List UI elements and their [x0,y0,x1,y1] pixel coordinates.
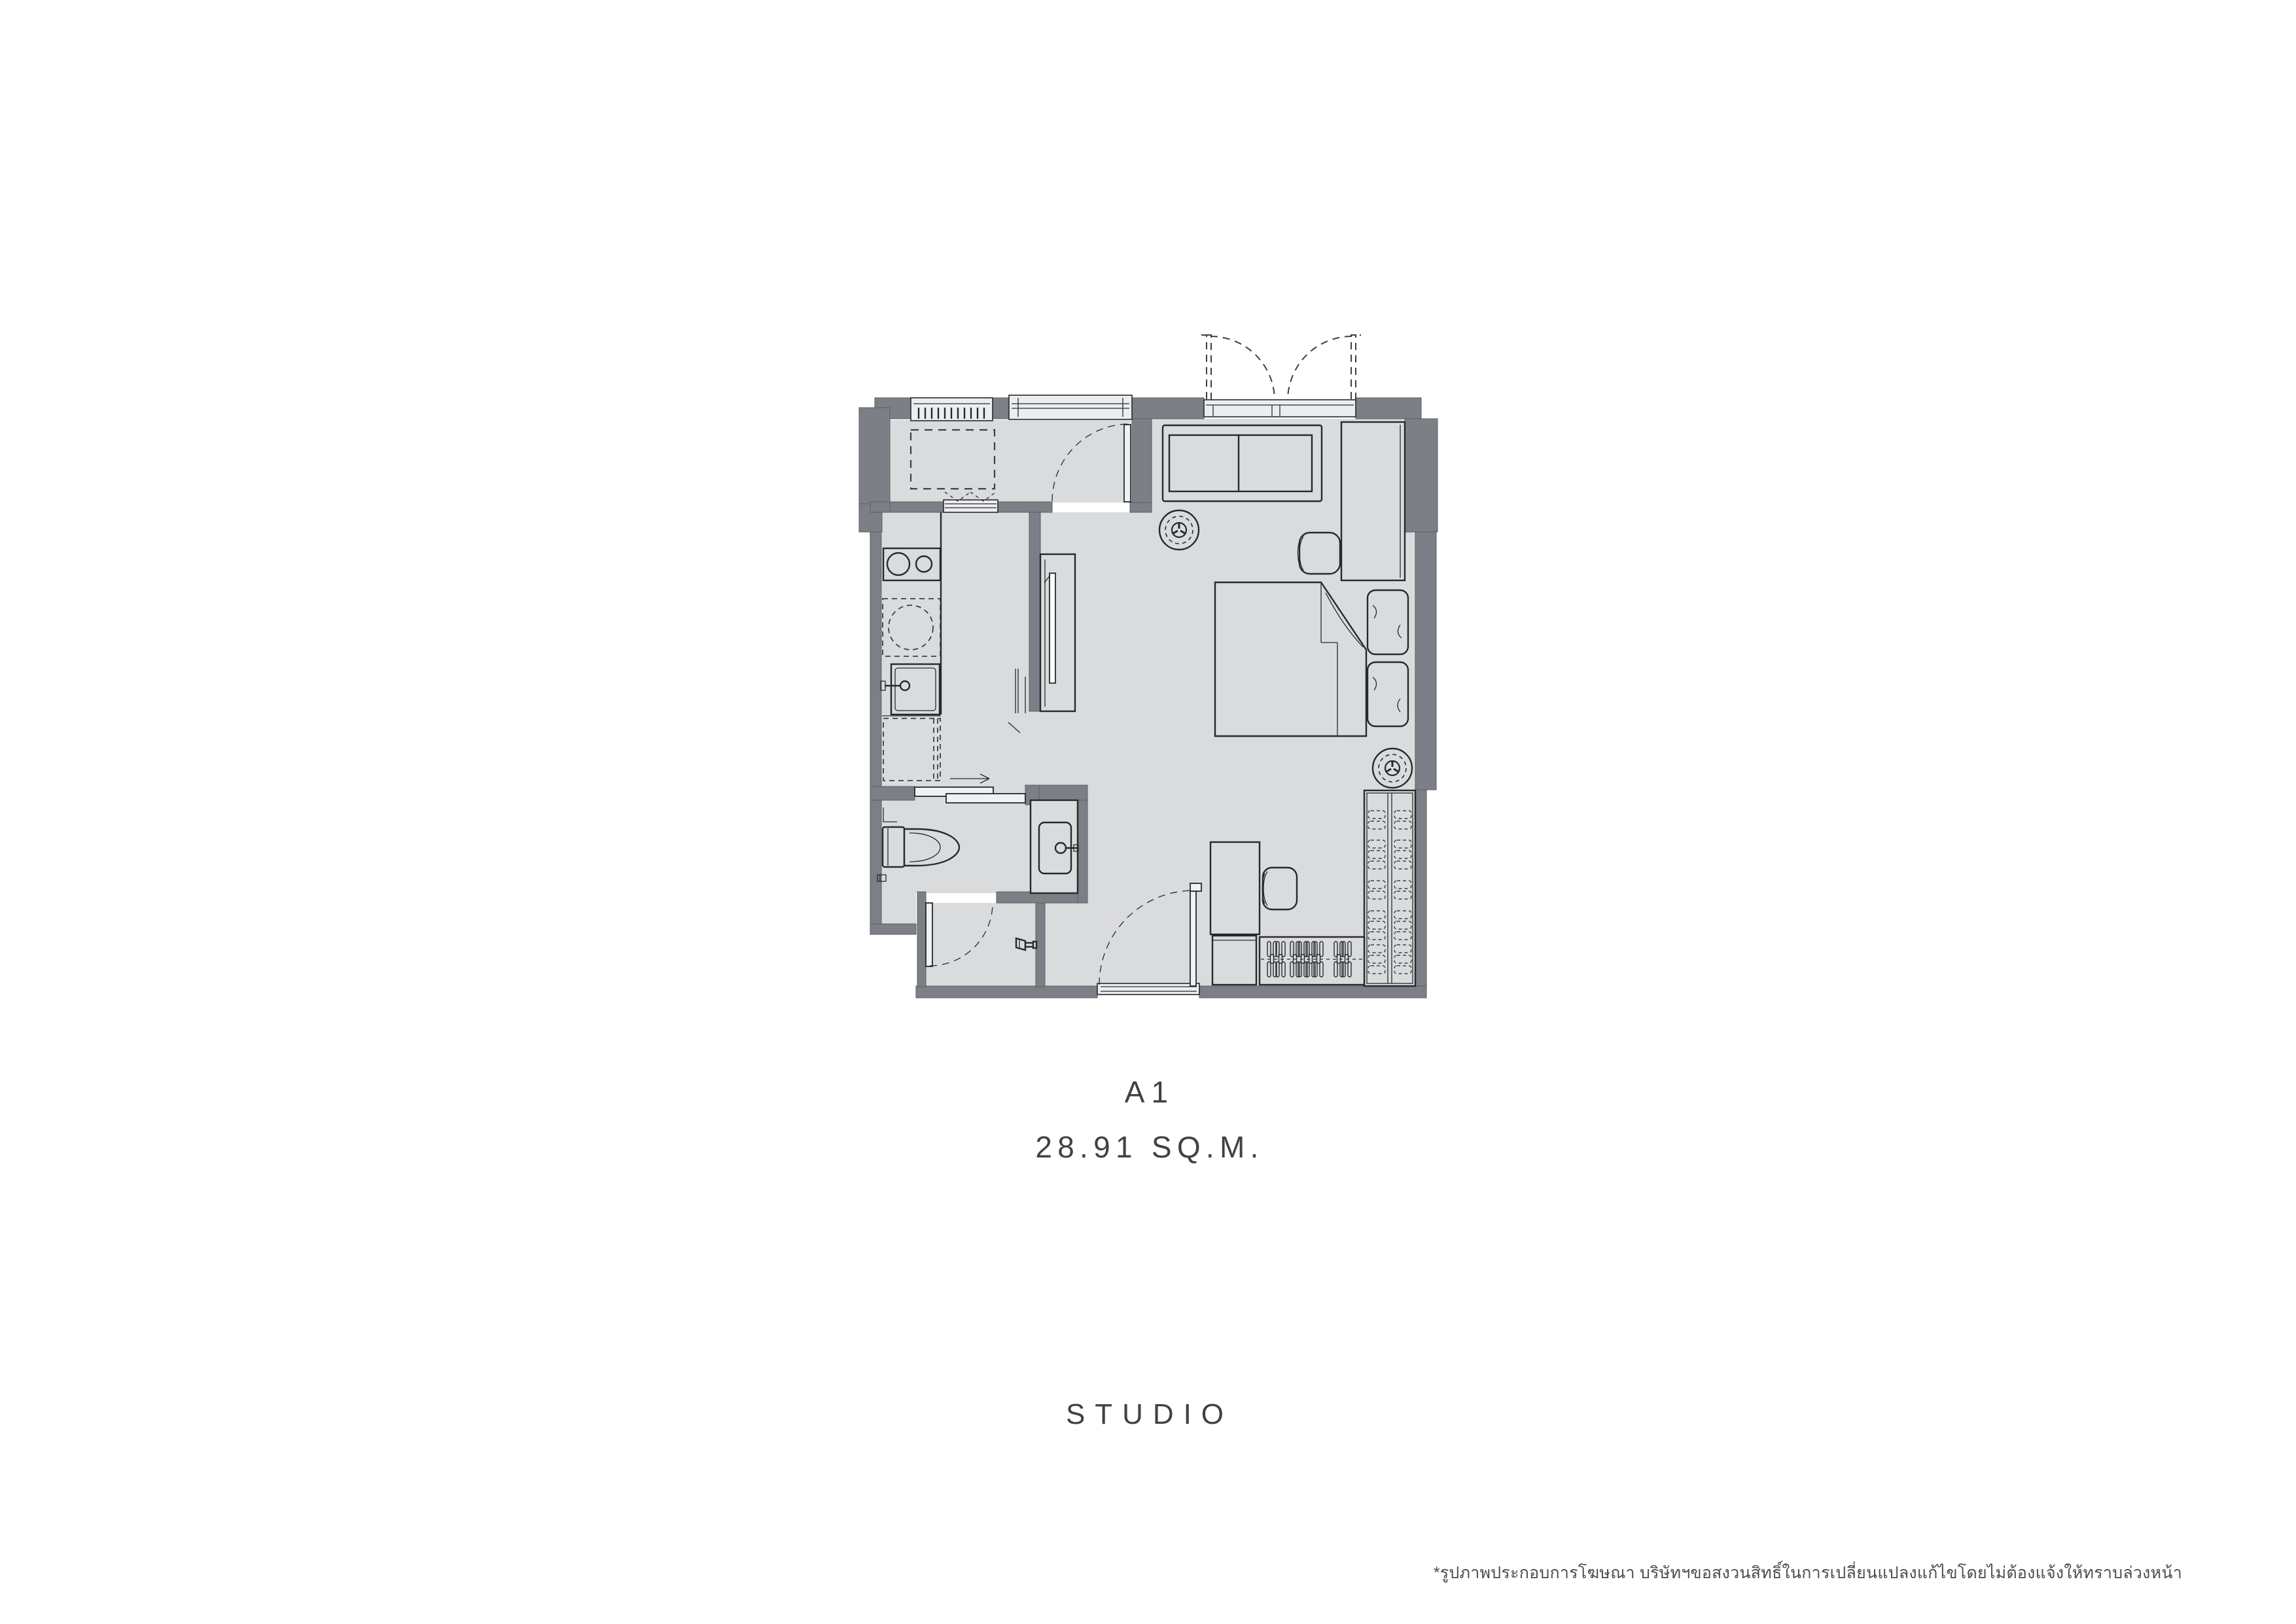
tv-cabinet [1040,554,1075,711]
unit-type-label: STUDIO [1066,1400,1233,1429]
side-cabinet [1341,422,1405,580]
desk [1210,842,1260,985]
lounge-chair [1298,533,1341,574]
vanity-sink [1031,800,1078,893]
area-label: 28.91 SQ.M. [1035,1132,1263,1162]
desk-chair [1262,868,1297,909]
french-doors [1201,335,1361,400]
floor-plan-drawing [0,0,2296,1624]
tall-wardrobe [1364,790,1415,986]
ac-louver-vent [911,398,993,421]
disclaimer-text: *รูปภาพประกอบการโฆษณา บริษัทฯขอสงวนสิทธิ… [1434,1565,2182,1581]
floor-plan-page: A1 28.91 SQ.M. STUDIO *รูปภาพประกอบการโฆ… [0,0,2296,1624]
hanger-wardrobe [1260,937,1364,985]
hall-window [1009,395,1132,419]
sofa [1163,425,1322,501]
entrance-sill [1204,400,1356,417]
unit-label: A1 [1125,1077,1175,1107]
